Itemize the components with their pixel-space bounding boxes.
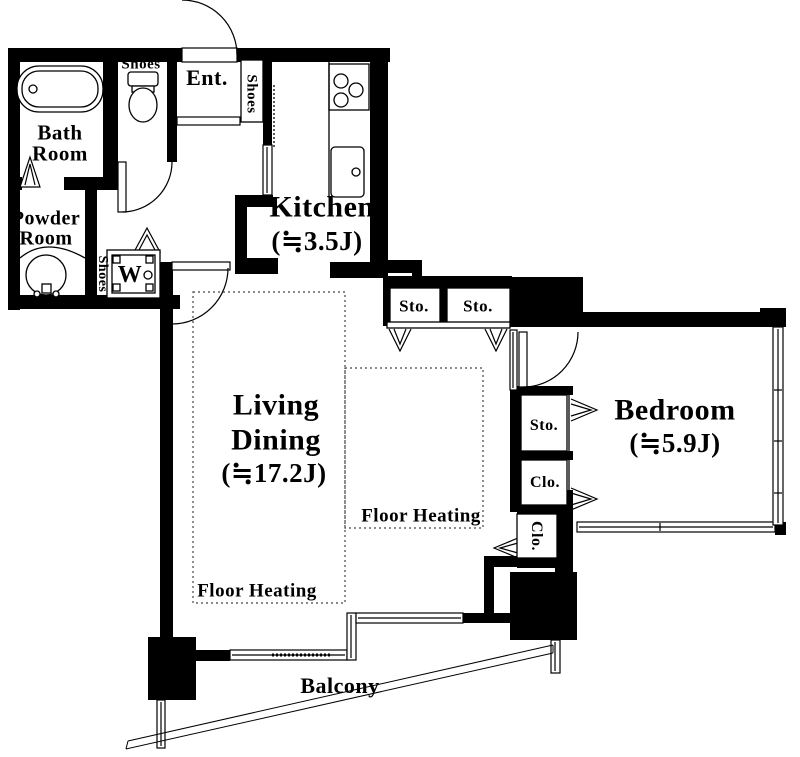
hall-sto-2-label: Sto. [463, 297, 493, 314]
living-dining-size-label: (≒17.2J) [221, 460, 326, 488]
floor-heating-2-label: Floor Heating [361, 506, 481, 525]
floor-heating-1-label: Floor Heating [197, 581, 317, 600]
bedroom-clo-label: Clo. [530, 475, 560, 491]
entrance-label: Ent. [186, 67, 228, 89]
bathtub-icon [17, 66, 103, 112]
kitchen-sink-icon [331, 147, 364, 197]
toilet-icon [128, 72, 158, 122]
entrance-door [182, 0, 237, 62]
kitchen-label: Kitchen [269, 193, 374, 224]
bath-room-label-line1: Bath [32, 123, 88, 144]
washer-folding-door [134, 228, 160, 252]
living-dining-label-line2: Dining [231, 426, 321, 457]
balcony-label: Balcony [300, 675, 379, 697]
bedroom-sto-folding-door [571, 399, 597, 421]
bath-room-label: Bath Room [32, 123, 88, 166]
floor-plan: Bath Room Powder Room Shoes Ent. Shoes K… [0, 0, 800, 757]
bath-room-label-line2: Room [32, 144, 88, 165]
shoes-entrance-label: Shoes [243, 74, 258, 113]
bedroom-size-label: (≒5.9J) [629, 430, 720, 458]
washer-label: W [118, 263, 143, 287]
bedroom-clo-folding-door [571, 488, 597, 510]
stove-icon [329, 64, 369, 110]
entrance-step [177, 117, 240, 125]
powder-room-label: Powder Room [12, 209, 81, 250]
bedroom-clo2-label: Clo. [528, 521, 544, 551]
powder-room-label-line1: Powder [12, 209, 81, 229]
hall-living-door [172, 262, 230, 324]
hall-sto-1-label: Sto. [399, 297, 429, 314]
living-dining-label-line1: Living [233, 391, 319, 422]
shoes-washer-label: Shoes [95, 256, 109, 293]
hall-sto-folding-door-1 [389, 329, 411, 351]
bedroom-sto-label: Sto. [530, 418, 558, 434]
powder-basin-icon [20, 247, 85, 297]
kitchen-size-label: (≒3.5J) [271, 228, 362, 256]
toilet-door [118, 162, 172, 212]
powder-room-label-line2: Room [12, 229, 81, 249]
hall-sto-folding-door-2 [485, 329, 507, 351]
shoes-toilet-label: Shoes [121, 57, 160, 72]
bedroom-clo2-folding-door [494, 538, 518, 558]
floor-heating-area-2 [345, 368, 483, 528]
bedroom-door [519, 332, 578, 387]
floor-plan-linework [0, 0, 800, 757]
bedroom-label: Bedroom [614, 396, 735, 427]
walls [8, 48, 786, 700]
